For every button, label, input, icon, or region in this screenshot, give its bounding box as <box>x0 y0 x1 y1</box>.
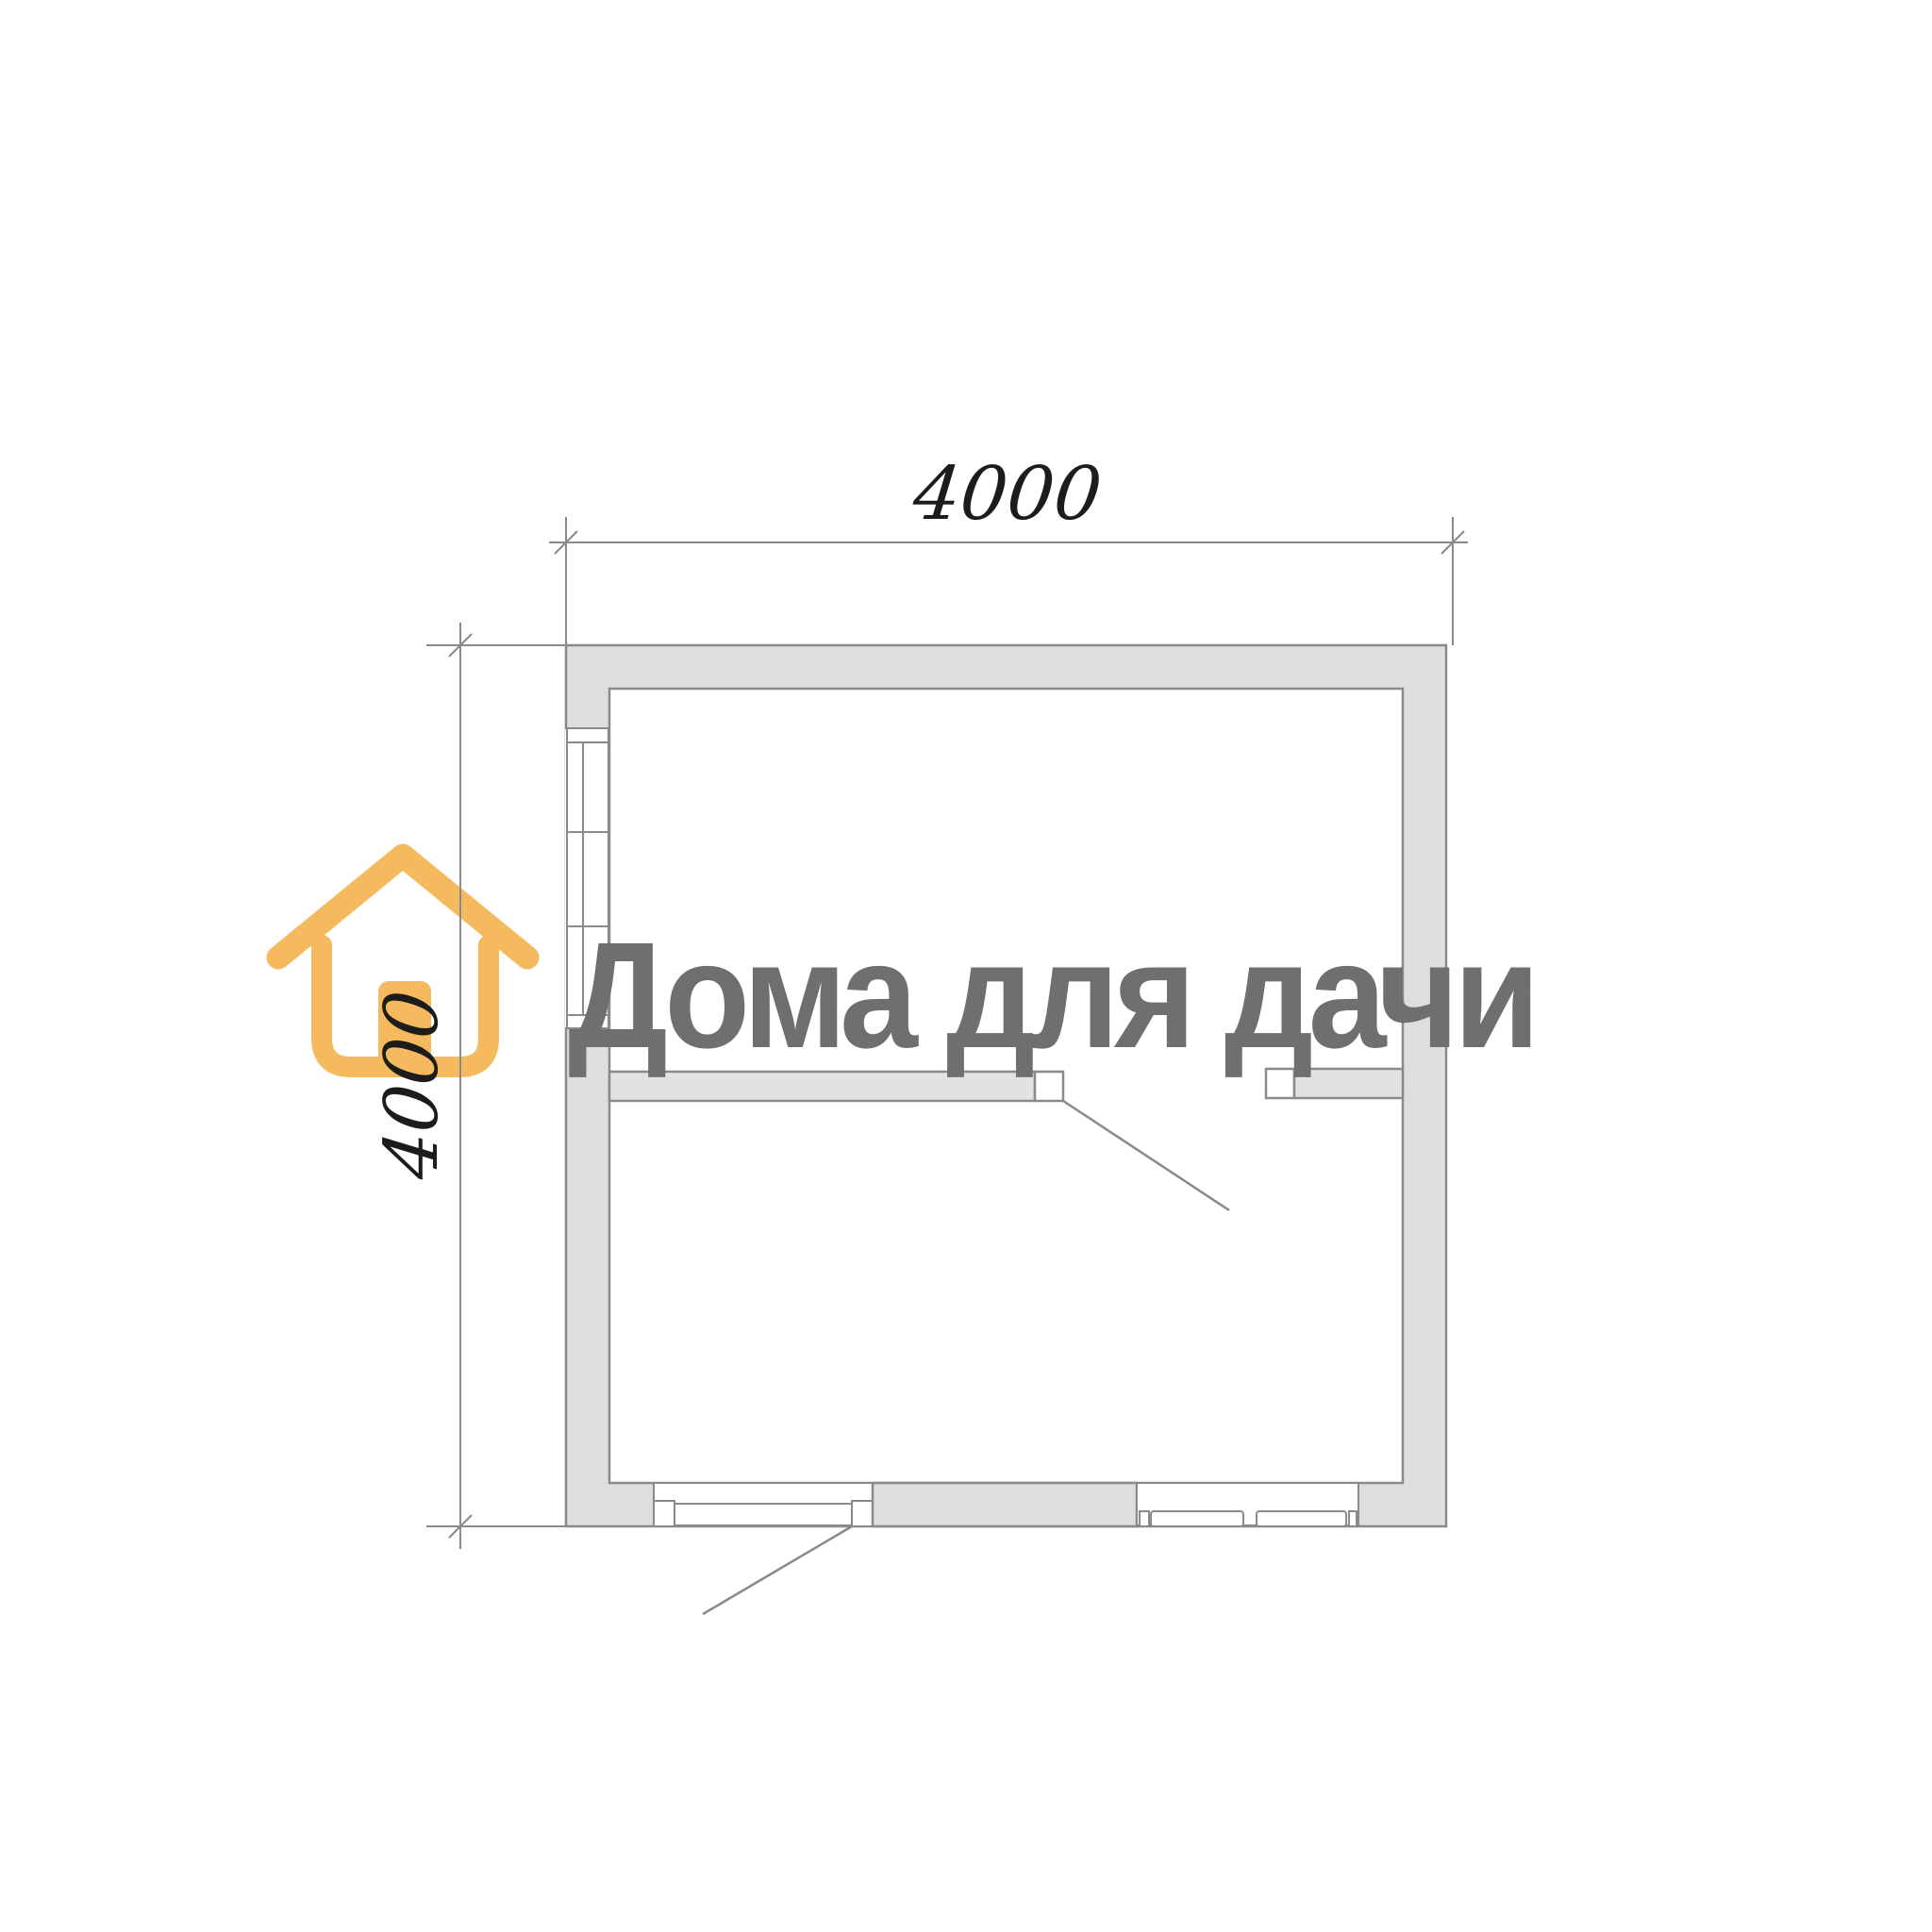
entrance-door-swing <box>703 1526 852 1614</box>
watermark-text: Дома для дачи <box>568 920 1535 1071</box>
interior-door-swing <box>1063 1101 1229 1210</box>
entrance-door-opening <box>654 1483 873 1526</box>
bottom-wall-solid-block <box>873 1483 1137 1526</box>
dimension-label-top: 4000 <box>909 452 1106 537</box>
dimension-label-left: 4000 <box>370 987 455 1183</box>
floor-plan-page: Дома для дачи 4000 4000 <box>0 0 1932 1932</box>
